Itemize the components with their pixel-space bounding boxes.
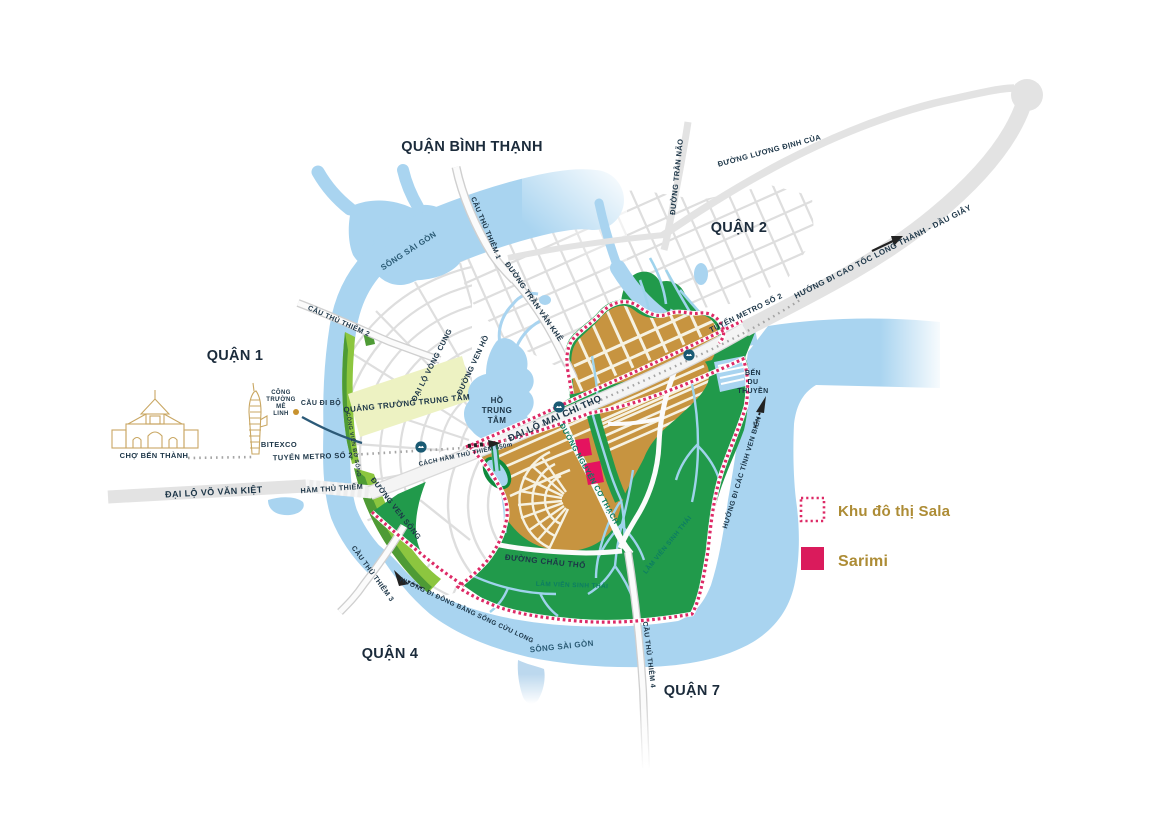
- svg-text:QUẬN 4: QUẬN 4: [362, 644, 419, 662]
- svg-text:TÂM: TÂM: [488, 416, 507, 425]
- svg-text:DU: DU: [748, 379, 759, 386]
- svg-text:MÊ: MÊ: [276, 402, 286, 410]
- svg-text:QUẬN 7: QUẬN 7: [664, 681, 721, 699]
- svg-text:QUẬN 2: QUẬN 2: [711, 218, 768, 236]
- svg-text:Sarimi: Sarimi: [838, 553, 888, 570]
- svg-text:LINH: LINH: [273, 411, 289, 417]
- svg-text:CÔNG: CÔNG: [271, 388, 291, 396]
- svg-text:QUẬN BÌNH THẠNH: QUẬN BÌNH THẠNH: [401, 137, 542, 155]
- svg-text:TRUNG: TRUNG: [482, 406, 512, 415]
- svg-text:CHỢ BẾN THÀNH: CHỢ BẾN THÀNH: [120, 450, 189, 460]
- svg-text:HỒ: HỒ: [491, 395, 504, 405]
- svg-text:BITEXCO: BITEXCO: [261, 440, 297, 449]
- svg-text:TRƯỜNG: TRƯỜNG: [266, 395, 296, 403]
- svg-text:Khu đô thị Sala: Khu đô thị Sala: [838, 503, 951, 520]
- svg-text:QUẬN 1: QUẬN 1: [207, 346, 264, 364]
